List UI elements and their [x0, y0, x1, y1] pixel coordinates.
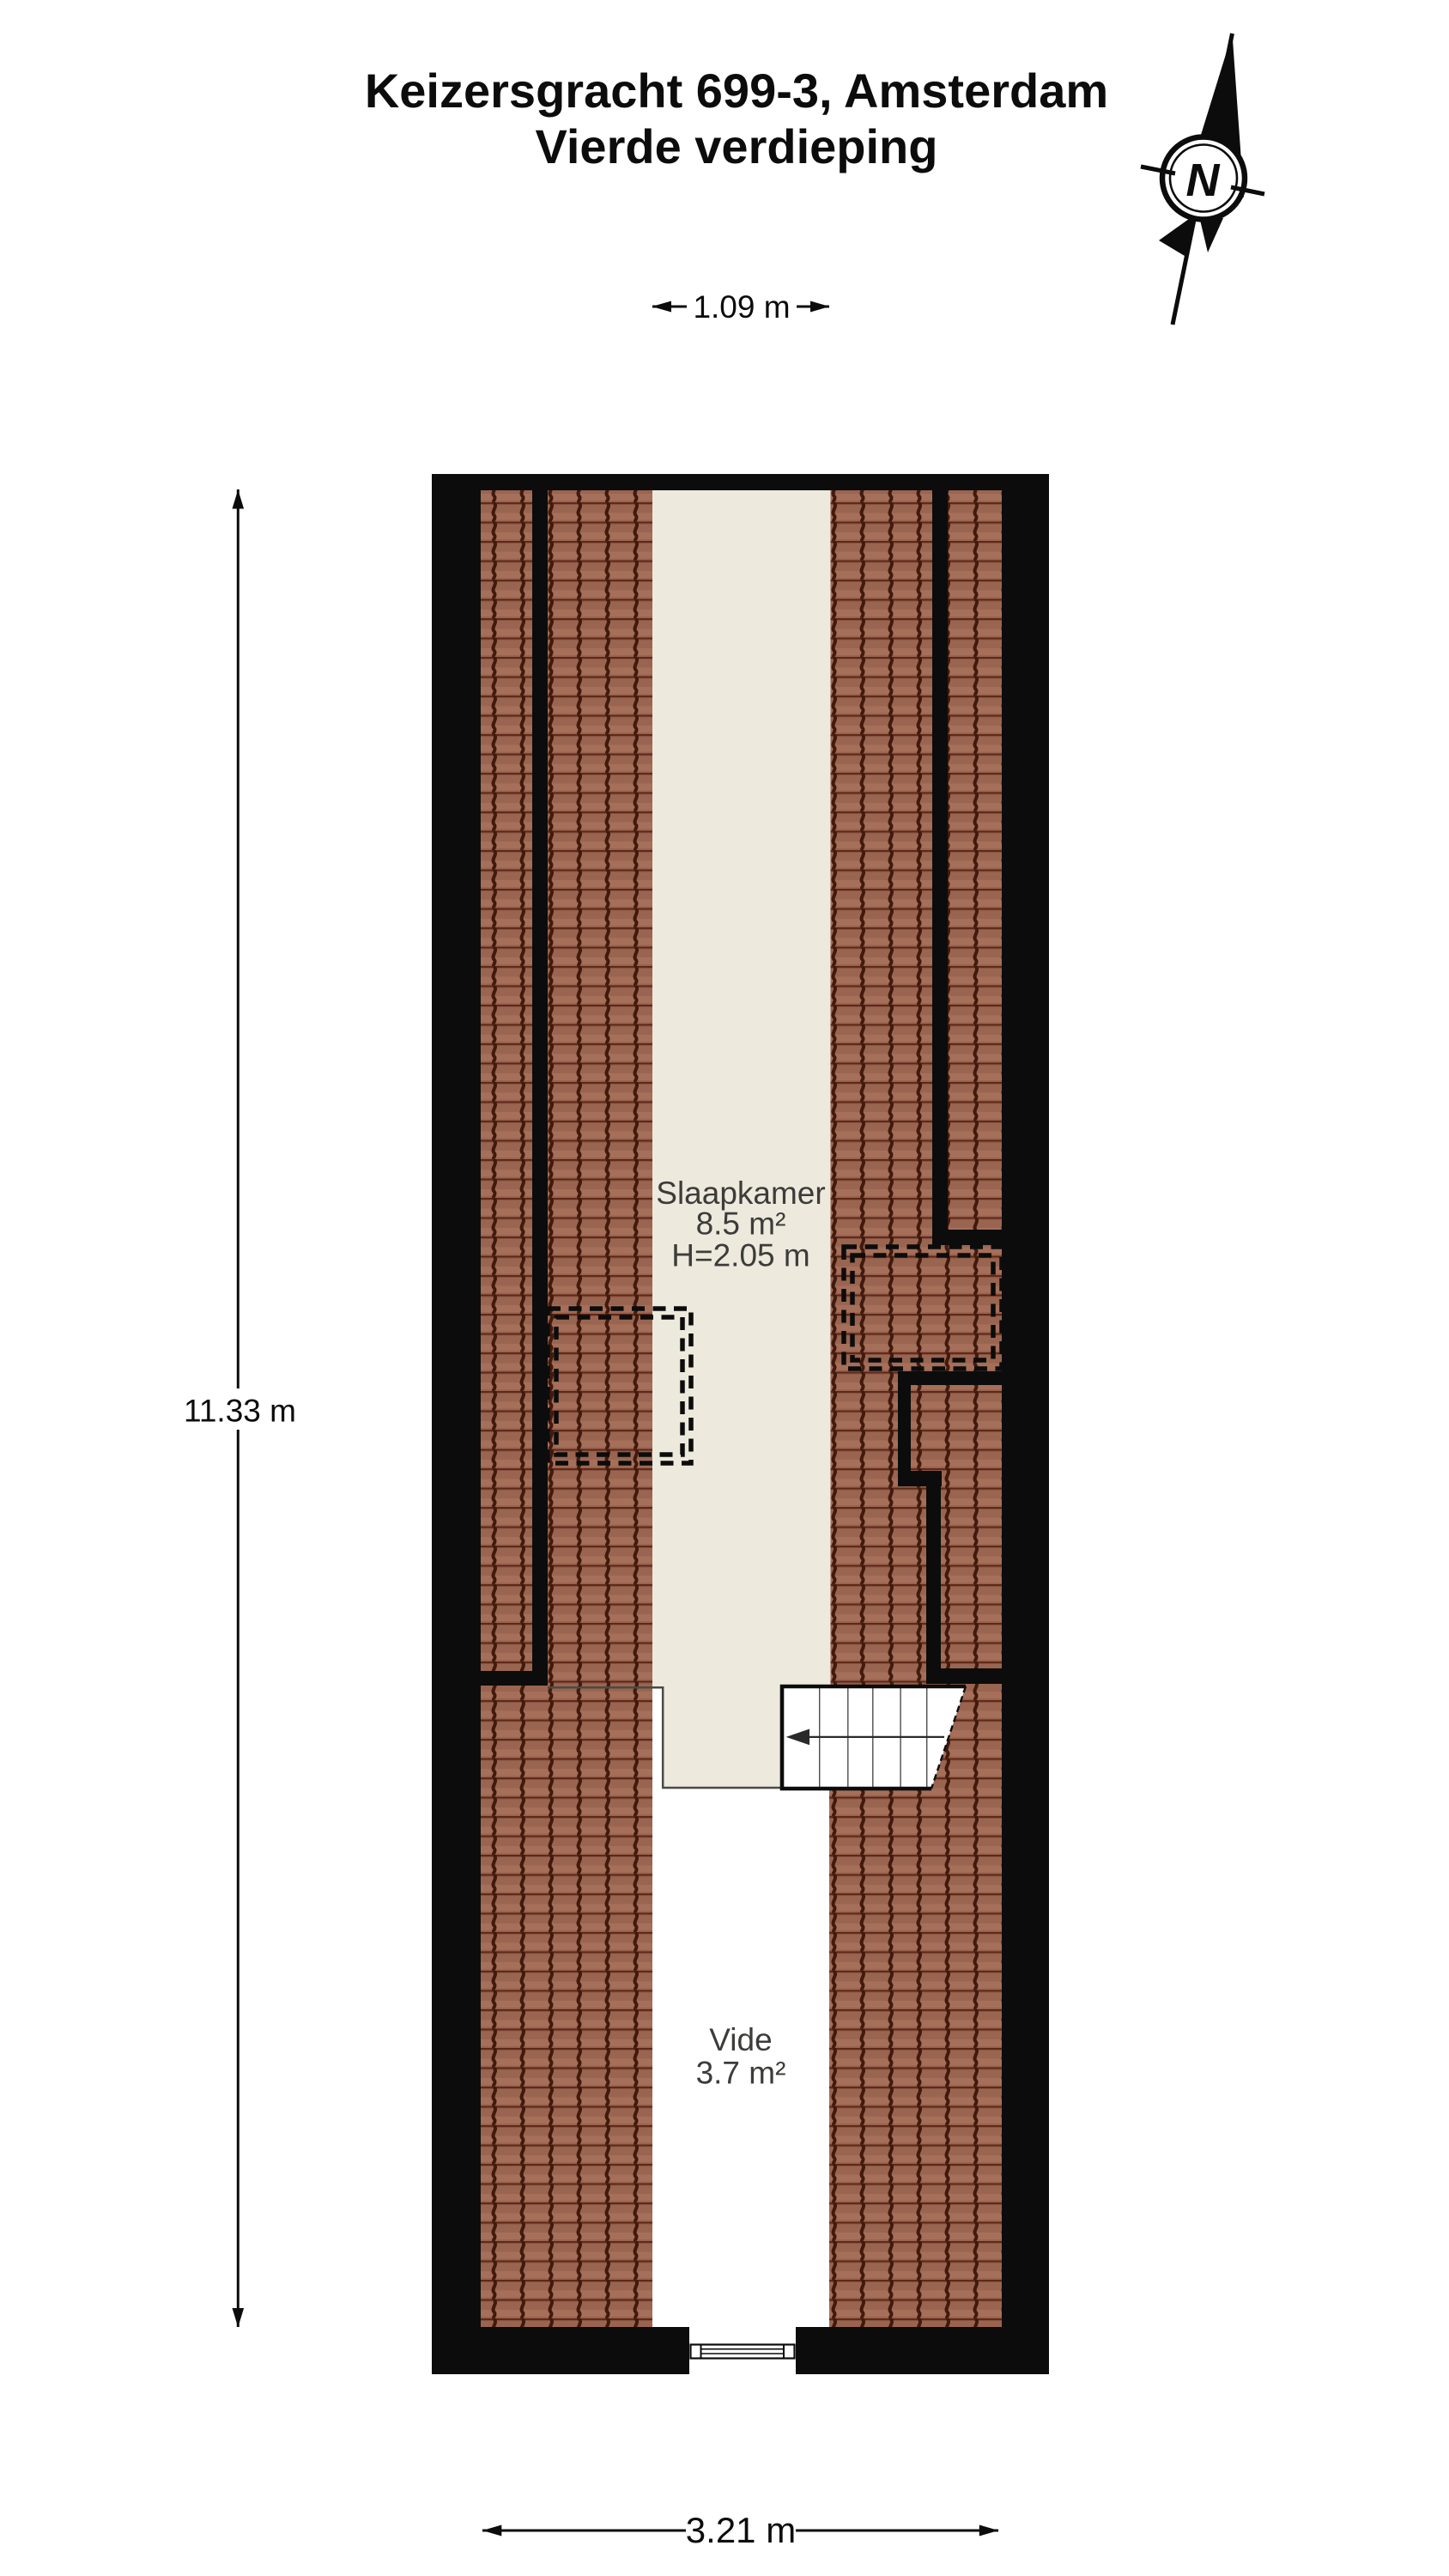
- svg-text:Keizersgracht 699-3, Amsterdam: Keizersgracht 699-3, Amsterdam: [365, 64, 1108, 118]
- svg-text:N: N: [1186, 155, 1221, 206]
- svg-text:11.33 m: 11.33 m: [184, 1394, 296, 1429]
- svg-text:8.5 m²: 8.5 m²: [696, 1206, 786, 1242]
- svg-text:Vide: Vide: [709, 2022, 772, 2057]
- svg-text:Vierde verdieping: Vierde verdieping: [536, 119, 938, 173]
- svg-text:H=2.05 m: H=2.05 m: [671, 1238, 809, 1273]
- svg-text:3.21 m: 3.21 m: [686, 2510, 796, 2550]
- svg-text:1.09 m: 1.09 m: [693, 289, 790, 325]
- svg-text:3.7 m²: 3.7 m²: [696, 2056, 786, 2091]
